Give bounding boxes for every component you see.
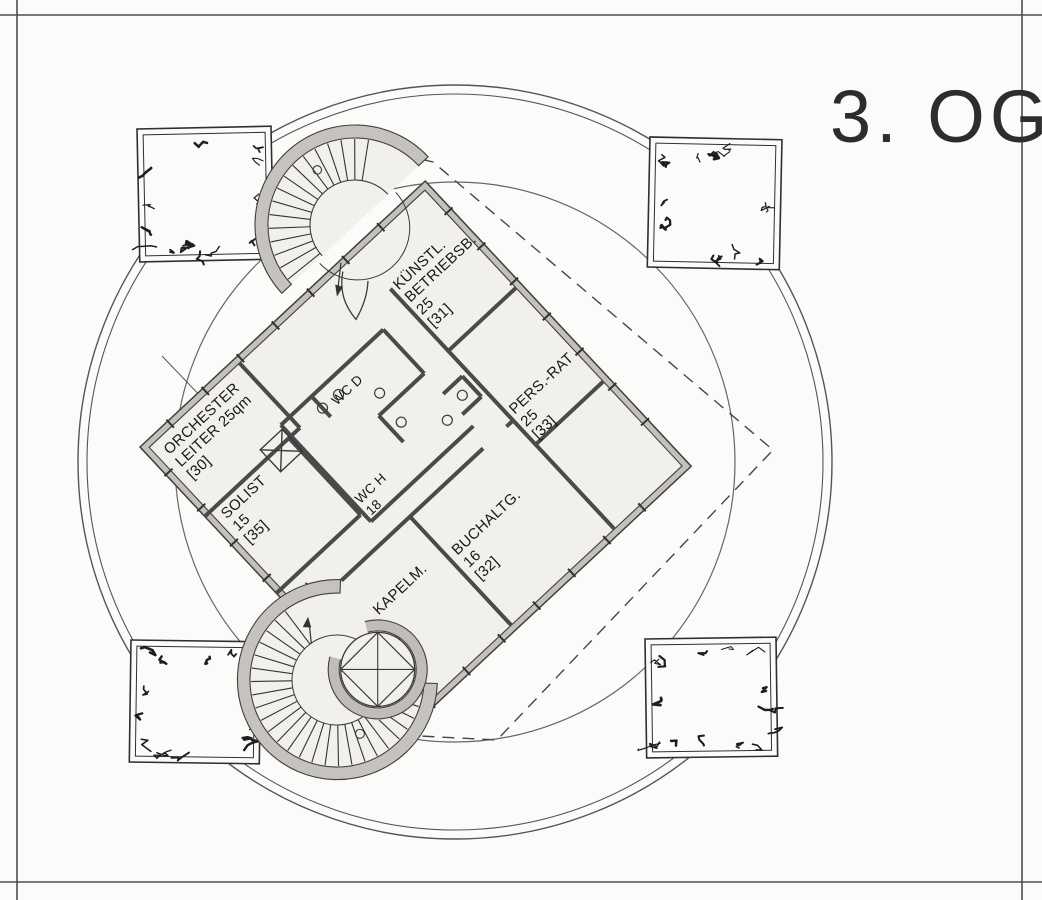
floor-title: 3. OG [830,75,1042,158]
skylight-square-bottom-right [636,637,783,758]
floor-plan-sheet: 3. OG [0,0,1042,900]
floor-plan-drawing: 3. OG [0,0,1042,900]
skylight-square-top-left [130,126,274,266]
skylight-square-top-right [647,137,782,270]
